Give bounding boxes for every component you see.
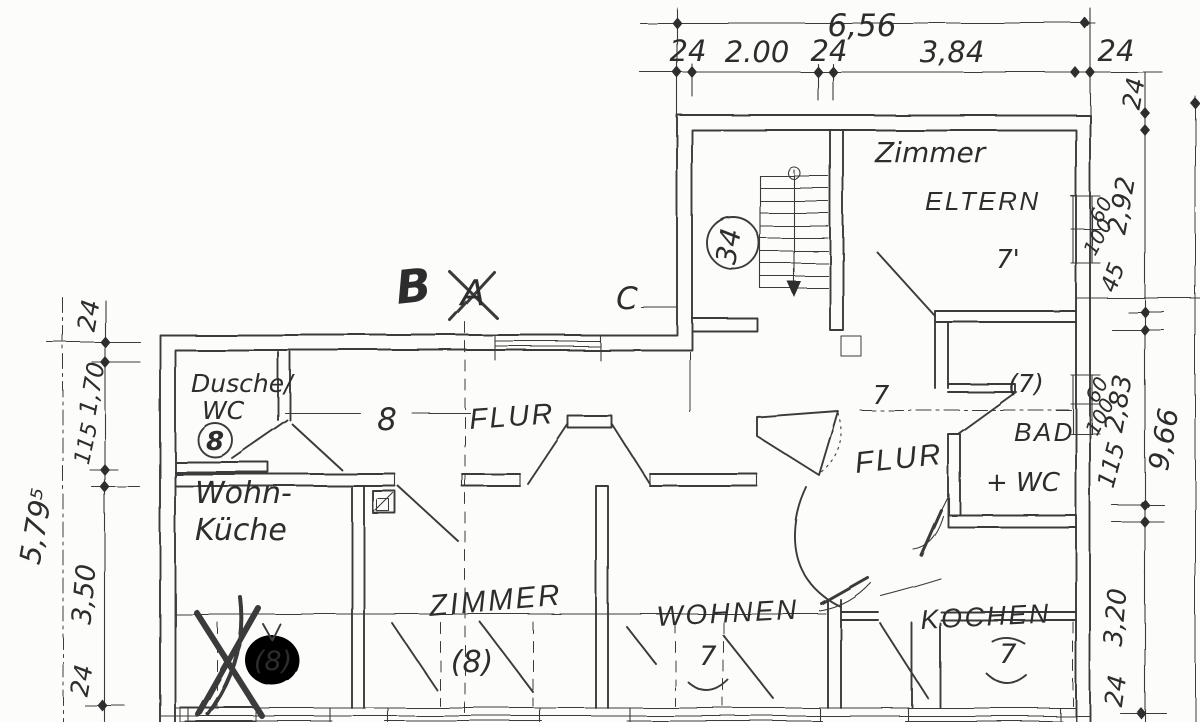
stairs-count: 34 (709, 226, 748, 267)
text-layer: 6,56 24 2.00 24 3,84 24 24 2,92 60 100 4… (13, 8, 1186, 709)
floor-plan-sheet: 6,56 24 2.00 24 3,84 24 24 2,92 60 100 4… (0, 0, 1200, 722)
section-mark-c: C (616, 281, 638, 317)
room-number-zimmer: (8) (451, 645, 494, 680)
room-label-zimmer: ZIMMER (427, 578, 564, 623)
room-number-flur-right: 7 (873, 381, 890, 411)
dim-top-p3: 24 (811, 34, 848, 68)
dim-right-320: 3,20 (1099, 587, 1134, 647)
room-number-dusche: 8 (206, 427, 224, 457)
dim-left-outer: 5,79⁵ (13, 486, 60, 567)
annotation-marks (196, 272, 1026, 716)
dim-right-115: 115 (1092, 439, 1131, 490)
room-label-kochen: KOCHEN (920, 598, 1052, 635)
stairs-down-arrow (787, 281, 801, 297)
dim-top-p5: 24 (1098, 34, 1135, 68)
section-mark-b: B (393, 257, 434, 314)
room-label-flur-right: FLUR (853, 438, 944, 480)
room-label-bad-2: + WC (986, 468, 1061, 498)
dim-left-24b: 24 (65, 662, 99, 698)
window-symbol (495, 335, 600, 360)
floor-plan-canvas: 6,56 24 2.00 24 3,84 24 24 2,92 60 100 4… (0, 0, 1200, 722)
room-number-wohnkueche: (8) (254, 646, 292, 677)
room-number-kochen: 7 (999, 639, 1016, 670)
chimney-icon (373, 336, 861, 513)
dim-top-p4: 3,84 (920, 35, 985, 69)
dim-right-45: 45 (1096, 259, 1130, 295)
dim-left-350: 3,50 (66, 563, 102, 626)
room-number-wohnen: 7 (699, 641, 716, 672)
room-label-wohnkueche-2: Küche (195, 513, 287, 548)
dim-top-p1: 24 (670, 34, 707, 68)
dim-right-24b: 24 (1099, 673, 1132, 709)
room-label-wohnen: WOHNEN (656, 594, 800, 632)
room-label-flur-left: FLUR (468, 398, 556, 436)
dim-left-24: 24 (72, 297, 106, 333)
dim-right-outer: 9,66 (1142, 406, 1185, 473)
room-label-wohnkueche-1: Wohn- (195, 476, 292, 511)
dim-top-p2: 2.00 (725, 35, 790, 69)
room-label-zimmer-eltern-2: ELTERN (925, 186, 1041, 216)
room-label-dusche-2: WC (202, 396, 245, 425)
room-label-dusche-1: Dusche/ (191, 369, 295, 398)
room-number-flur-left: 8 (377, 402, 397, 438)
dim-left-115: 115 (70, 421, 103, 467)
room-label-zimmer-eltern-1: Zimmer (874, 136, 987, 169)
section-mark-a: A (459, 273, 486, 314)
room-number-bad: (7) (1008, 369, 1043, 398)
room-label-bad-1: BAD (1014, 417, 1075, 447)
dim-right-24: 24 (1117, 75, 1151, 111)
room-number-eltern: 7' (996, 245, 1020, 275)
